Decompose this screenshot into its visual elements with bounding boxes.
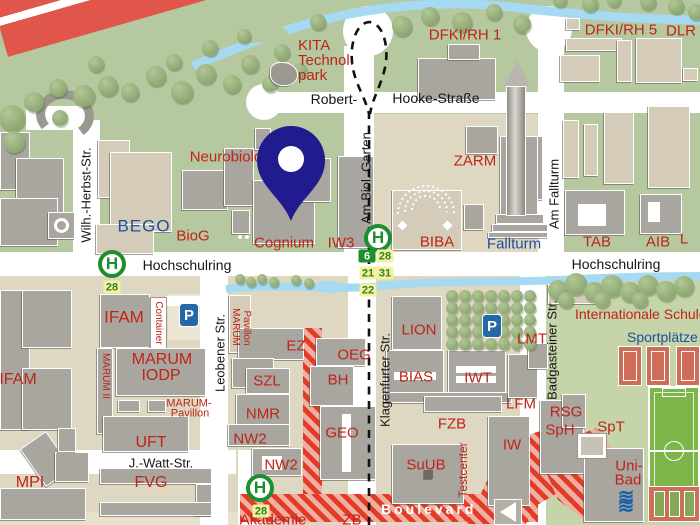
campus-map: KITATechnol.parkDFKI/RH 1DFKI/RH 5DLRNeu…	[0, 0, 700, 525]
marker-layer	[0, 0, 700, 525]
pin-hole	[278, 146, 304, 172]
location-pin-marker[interactable]	[257, 126, 325, 221]
